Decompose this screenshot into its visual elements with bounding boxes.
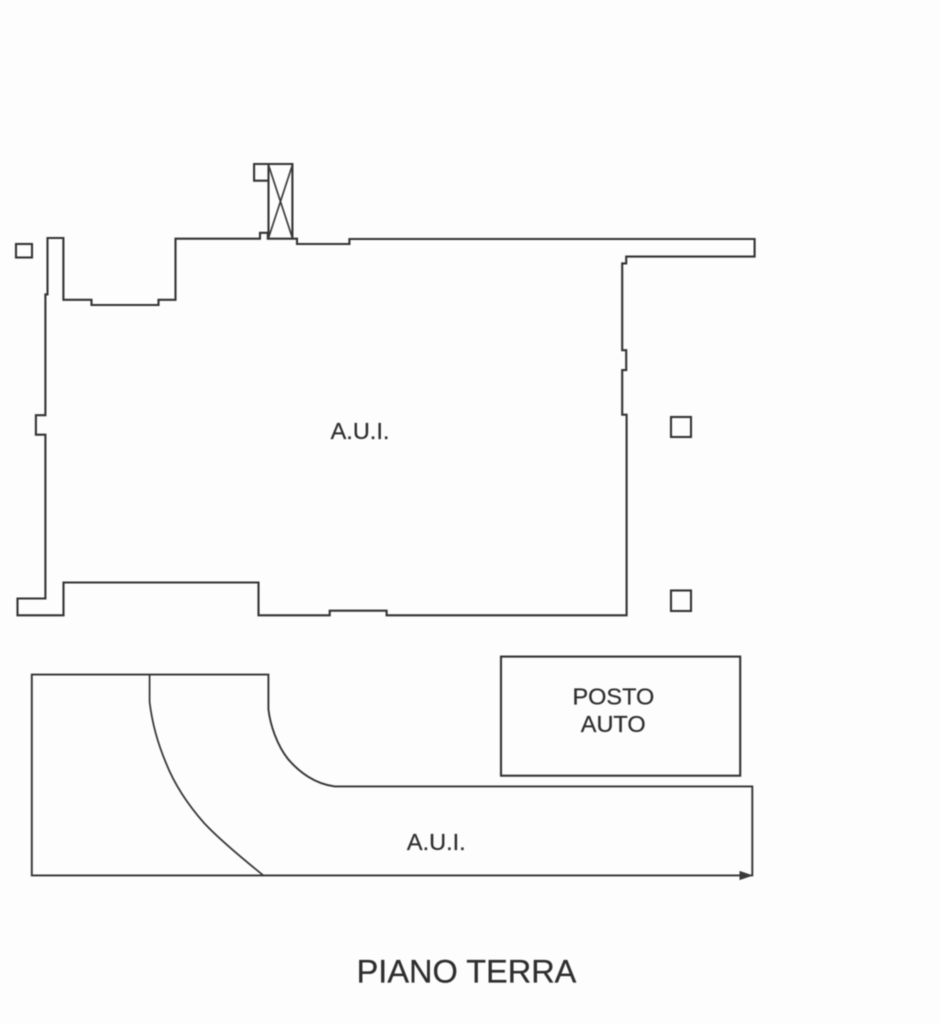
- svg-text:PIANO TERRA: PIANO TERRA: [357, 954, 577, 990]
- svg-text:A.U.I.: A.U.I.: [331, 418, 390, 444]
- svg-text:AUTO: AUTO: [581, 711, 646, 737]
- svg-text:POSTO: POSTO: [572, 684, 654, 710]
- svg-text:A.U.I.: A.U.I.: [407, 829, 466, 855]
